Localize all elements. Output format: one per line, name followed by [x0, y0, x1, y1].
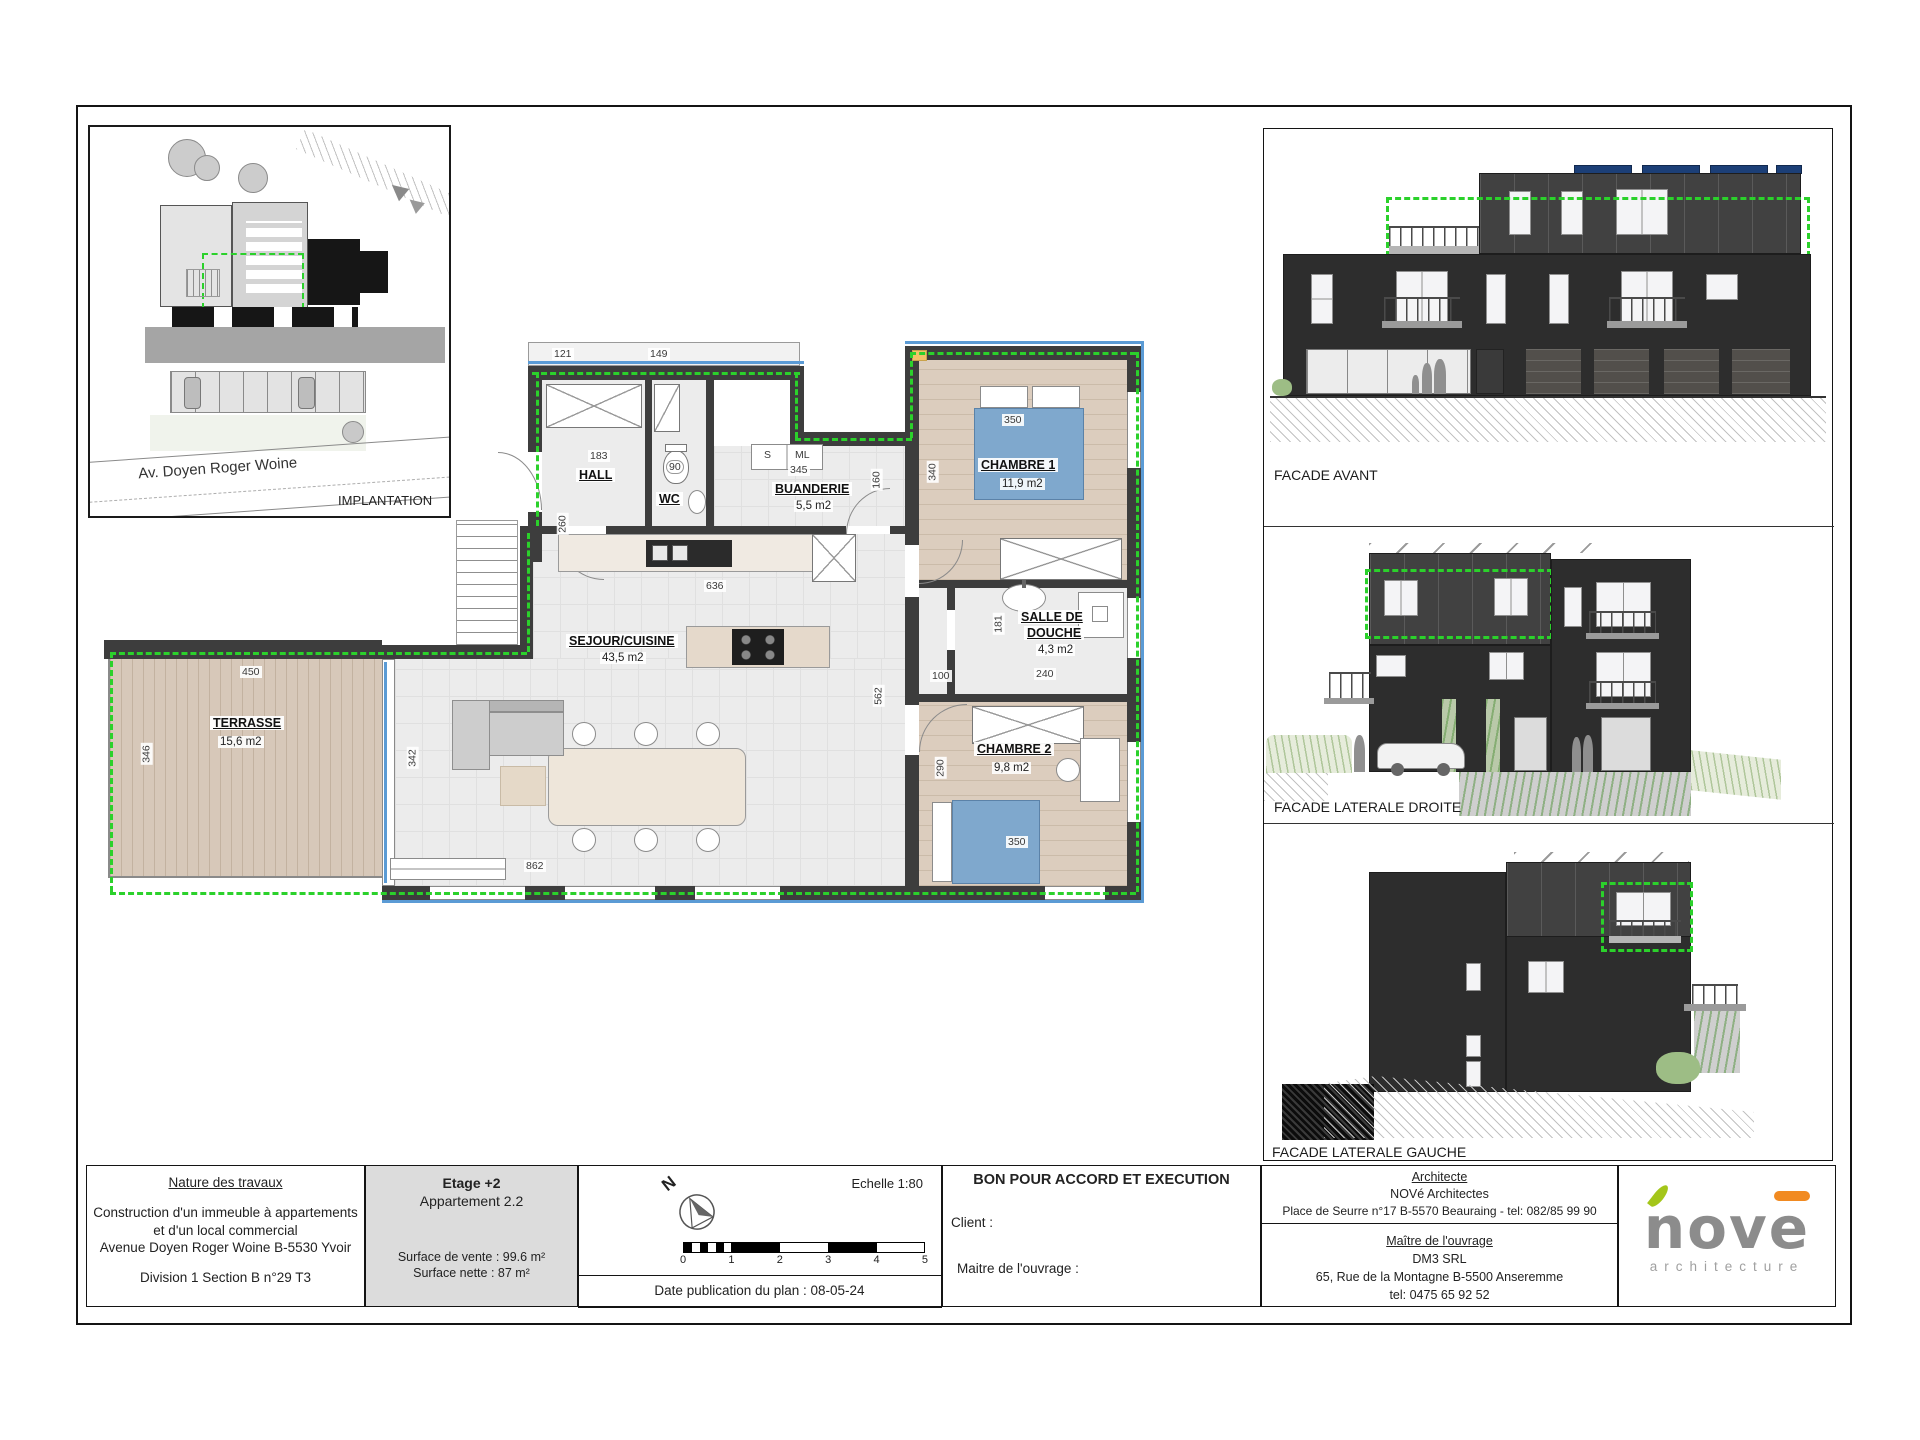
window — [1311, 274, 1333, 324]
wall — [919, 694, 1127, 702]
dim-label: 350 — [1006, 836, 1028, 848]
room-label-terrasse: TERRASSE — [210, 716, 284, 730]
rug — [500, 766, 546, 806]
approval-maitre: Maitre de l'ouvrage : — [957, 1260, 1252, 1278]
sink-basin — [652, 545, 668, 561]
rear-balcony-slab — [1684, 1004, 1746, 1011]
apartment-outline — [532, 372, 800, 375]
washbasin-icon — [1002, 584, 1046, 612]
car-wheel — [1391, 763, 1404, 776]
retaining-wall-vines — [1459, 772, 1691, 816]
implantation-caption: IMPLANTATION — [338, 493, 432, 508]
dining-table — [548, 748, 746, 826]
site-boundary-hatch — [296, 129, 451, 245]
window — [1466, 1035, 1481, 1057]
room-area-terrasse: 15,6 m2 — [218, 736, 264, 748]
window — [1549, 274, 1569, 324]
owner-name: DM3 SRL — [1262, 1250, 1617, 1268]
dim-label: 149 — [648, 348, 670, 360]
window — [1706, 274, 1738, 300]
room-area-buanderie: 5,5 m2 — [794, 500, 833, 512]
window — [1489, 652, 1524, 680]
room-area-chambre2: 9,8 m2 — [992, 762, 1031, 774]
shower-drain — [1092, 606, 1108, 622]
garage-door — [1732, 349, 1790, 394]
bush-icon — [342, 421, 364, 443]
facade-laterale-gauche: FACADE LATERALE GAUCHE — [1264, 823, 1834, 1162]
balcony-slab — [1607, 321, 1687, 328]
facade-droite-label: FACADE LATERALE DROITE — [1274, 799, 1461, 815]
room-area-sejour: 43,5 m2 — [600, 652, 646, 664]
scale-bar-segment — [732, 1242, 780, 1253]
chair-icon — [572, 722, 596, 746]
balcony-railing — [1589, 681, 1656, 703]
drawing-sheet: Av. Doyen Roger Woine IMPLANTATION — [0, 0, 1920, 1440]
scale-tick: 2 — [774, 1254, 786, 1266]
tree-icon — [194, 155, 220, 181]
car-wheel — [1437, 763, 1450, 776]
titleblock-nature: Nature des travaux Construction d'un imm… — [86, 1165, 365, 1307]
dark-roof-block — [360, 251, 388, 293]
terrace-parapet — [104, 640, 382, 659]
architect-name: NOVé Architectes — [1262, 1186, 1617, 1203]
facade-line-blue — [905, 341, 1141, 344]
surface-nette: Surface nette : 87 m² — [366, 1265, 577, 1282]
room-label-sejour: SEJOUR/CUISINE — [566, 634, 678, 648]
appliance-label: ML — [793, 449, 812, 461]
room-label-chambre2: CHAMBRE 2 — [974, 742, 1054, 756]
apartment-outline — [795, 438, 912, 441]
dim-label: 350 — [1002, 414, 1024, 426]
nature-line3: Avenue Doyen Roger Woine B-5530 Yvoir — [87, 1239, 364, 1257]
titleblock-approval: BON POUR ACCORD ET EXECUTION Client : Ma… — [942, 1165, 1261, 1307]
dim-label: 260 — [557, 513, 569, 535]
scale-tick: 3 — [822, 1254, 834, 1266]
ground-hatch — [1270, 398, 1826, 442]
person-silhouette — [1434, 359, 1446, 394]
logo: nove — [1644, 1199, 1810, 1257]
scale-text: Echelle 1:80 — [851, 1176, 923, 1191]
person-silhouette — [1572, 737, 1581, 772]
apartment-outline-facade — [1386, 197, 1810, 257]
facade-gauche-label: FACADE LATERALE GAUCHE — [1272, 1144, 1466, 1160]
slope-hatch — [1264, 773, 1328, 801]
terrasse-floor — [108, 659, 382, 878]
facade-line-blue — [382, 900, 1144, 903]
door-opening — [905, 705, 919, 755]
hedge — [1266, 735, 1352, 773]
wall — [706, 380, 714, 534]
facade-avant-label: FACADE AVANT — [1274, 467, 1378, 483]
owner-section: Maître de l'ouvrage DM3 SRL 65, Rue de l… — [1262, 1224, 1617, 1305]
titleblock-logo: nove architecture — [1618, 1165, 1836, 1307]
facade-line-blue — [1141, 341, 1144, 903]
scale-bar — [683, 1242, 925, 1252]
cooktop-icon — [732, 629, 784, 665]
bush-icon — [1272, 379, 1292, 396]
wall — [645, 380, 652, 534]
dim-label: 240 — [1034, 668, 1056, 680]
apartment-outline — [110, 652, 527, 655]
child-silhouette — [1412, 375, 1419, 394]
appliance-label: S — [762, 449, 773, 461]
side-balcony-railing — [1329, 672, 1371, 698]
surface-vente: Surface de vente : 99.6 m² — [366, 1249, 577, 1266]
chair-icon — [696, 828, 720, 852]
green-pillar — [1486, 699, 1500, 772]
nature-title: Nature des travaux — [87, 1174, 364, 1192]
roof-rafters — [1514, 852, 1689, 862]
titleblock-architect: Architecte NOVé Architectes Place de Seu… — [1261, 1165, 1618, 1307]
sink-basin — [672, 545, 688, 561]
dim-label: 862 — [524, 860, 546, 872]
wardrobe — [546, 384, 642, 428]
window — [1466, 1061, 1481, 1087]
etage-title: Etage +2 — [366, 1174, 577, 1192]
window — [1376, 655, 1406, 677]
apartment-outline — [536, 372, 539, 526]
tall-cabinet — [812, 534, 856, 582]
room-label-douche-1: SALLE DE — [1018, 610, 1086, 624]
window — [1564, 587, 1582, 627]
scale-tick: 5 — [919, 1254, 931, 1266]
window — [1466, 963, 1481, 991]
logo-text: nove — [1644, 1194, 1810, 1262]
scale-tick: 0 — [677, 1254, 689, 1266]
dim-label: 100 — [930, 670, 952, 682]
logo-accent-bar — [1774, 1191, 1810, 1201]
pillow — [980, 386, 1028, 408]
wardrobe — [1000, 538, 1122, 580]
door-opening — [947, 610, 955, 650]
north-letter: N — [658, 1172, 680, 1195]
person-silhouette — [1354, 735, 1365, 772]
window — [1486, 274, 1506, 324]
tree-icon — [238, 163, 268, 193]
balcony-railing — [1384, 297, 1460, 321]
dim-label: 562 — [873, 685, 885, 707]
chair-icon — [572, 828, 596, 852]
dim-label: 450 — [240, 666, 262, 678]
dim-label: 342 — [407, 747, 419, 769]
chair-icon — [634, 722, 658, 746]
dim-label: 346 — [141, 743, 153, 765]
grass-slope — [1691, 750, 1781, 799]
scale-bar-segment — [829, 1242, 877, 1253]
garage-row — [172, 307, 358, 327]
garage-door — [1526, 349, 1581, 394]
scale-bar-segment — [877, 1242, 925, 1253]
room-area-chambre1: 11,9 m2 — [1000, 478, 1045, 490]
person-silhouette — [1583, 735, 1593, 772]
implantation-panel: Av. Doyen Roger Woine IMPLANTATION — [88, 125, 451, 518]
dim-label: 183 — [588, 450, 610, 462]
bed2-headboard — [932, 802, 952, 882]
roof-rafters — [1369, 543, 1599, 553]
scale-bar-segment — [683, 1242, 732, 1253]
apartment-outline-facade — [1365, 569, 1553, 639]
room-label-douche-2: DOUCHE — [1024, 626, 1084, 640]
road-band — [145, 327, 445, 363]
chair-icon — [696, 722, 720, 746]
tv-sideboard — [390, 858, 506, 880]
entrance-glass-door — [1514, 717, 1547, 771]
dim-label: 290 — [935, 757, 947, 779]
nature-line1: Construction d'un immeuble à appartement… — [87, 1204, 364, 1222]
stairwell — [456, 520, 518, 646]
site-stairs — [186, 269, 220, 297]
plan-date-box: Date publication du plan : 08-05-24 — [578, 1275, 942, 1308]
titleblock-etage: Etage +2 Appartement 2.2 Surface de vent… — [365, 1165, 578, 1307]
scale-bar-segment — [780, 1242, 828, 1253]
apartment-outline — [110, 892, 1136, 895]
room-area-douche: 4,3 m2 — [1036, 644, 1075, 656]
titleblock-scale: N Echelle 1:80 0 1 2 3 4 5 Date publicat… — [578, 1165, 942, 1307]
storefront-glazing — [1306, 349, 1471, 394]
bush-icon — [1656, 1052, 1700, 1084]
apartment-outline — [910, 352, 913, 438]
toilet-tank — [665, 444, 687, 452]
architect-section: Architecte NOVé Architectes Place de Seu… — [1262, 1166, 1617, 1224]
scale-tick: 1 — [725, 1254, 737, 1266]
desk — [1080, 738, 1120, 802]
dim-label: 181 — [993, 613, 1005, 635]
person-silhouette — [1422, 363, 1432, 394]
facades-panel: FACADE AVANT — [1263, 128, 1833, 1161]
entrance-glass-door — [1601, 717, 1651, 771]
balcony-slab — [1382, 321, 1462, 328]
side-balcony-slab — [1324, 698, 1374, 704]
room-label-wc: WC — [656, 492, 683, 506]
dim-label: 90 — [666, 460, 684, 474]
approval-client: Client : — [951, 1214, 1252, 1232]
rear-balcony-railing — [1692, 984, 1738, 1004]
garage-door — [1594, 349, 1649, 394]
apartment-outline — [1136, 352, 1139, 892]
nature-line4: Division 1 Section B n°29 T3 — [87, 1269, 364, 1287]
pillow — [1032, 386, 1080, 408]
architect-title: Architecte — [1262, 1169, 1617, 1186]
facade-line-blue — [528, 361, 804, 364]
chair-icon — [634, 828, 658, 852]
apartment-outline — [795, 372, 798, 438]
facade-laterale-droite: FACADE LATERALE DROITE — [1264, 526, 1834, 823]
apartment-outline-facade — [1601, 882, 1693, 952]
left-block — [1369, 872, 1506, 1092]
washbasin-faucet — [1022, 580, 1026, 588]
dim-label: 340 — [927, 461, 939, 483]
balcony-railing — [1609, 297, 1685, 321]
desk-chair-icon — [1056, 758, 1080, 782]
balcony-slab — [1586, 633, 1659, 639]
dim-label: 636 — [704, 580, 726, 592]
architect-address: Place de Seurre n°17 B-5570 Beauraing - … — [1262, 1203, 1617, 1219]
wc-sink-icon — [688, 490, 706, 514]
approval-title: BON POUR ACCORD ET EXECUTION — [951, 1172, 1252, 1188]
apartment-outline — [527, 533, 530, 652]
wardrobe — [972, 706, 1084, 744]
room-label-buanderie: BUANDERIE — [772, 482, 852, 496]
window — [1528, 961, 1564, 993]
garage-door — [1664, 349, 1719, 394]
apartment-outline — [910, 352, 1136, 355]
street-name: Av. Doyen Roger Woine — [138, 449, 379, 483]
apartment-outline — [110, 652, 113, 892]
dim-label: 121 — [552, 348, 574, 360]
facade-line-blue — [384, 662, 387, 883]
dark-roof-block — [308, 239, 360, 305]
compass-icon — [670, 1185, 724, 1239]
scale-ticks: 0 1 2 3 4 5 — [677, 1254, 931, 1266]
balcony-slab — [1586, 703, 1659, 709]
door-opening — [905, 545, 919, 597]
car-icon — [184, 377, 201, 409]
room-label-hall: HALL — [576, 468, 615, 482]
owner-title: Maître de l'ouvrage — [1262, 1232, 1617, 1250]
scale-tick: 4 — [871, 1254, 883, 1266]
car-silhouette — [1377, 743, 1465, 769]
car-icon — [298, 377, 315, 409]
room-label-chambre1: CHAMBRE 1 — [978, 458, 1058, 472]
facade-avant: FACADE AVANT — [1264, 129, 1834, 526]
owner-tel: tel: 0475 65 92 52 — [1262, 1286, 1617, 1304]
balcony-railing — [1589, 611, 1656, 633]
dim-label: 345 — [788, 464, 810, 476]
entrance-door — [1476, 349, 1504, 394]
rear-wall-vines — [1694, 1011, 1740, 1073]
sofa-chaise — [452, 700, 490, 770]
owner-address: 65, Rue de la Montagne B-5500 Anseremme — [1262, 1268, 1617, 1286]
nature-line2: et d'un local commercial — [87, 1222, 364, 1240]
closet — [654, 384, 680, 432]
dim-label: 160 — [871, 469, 883, 491]
apartment-name: Appartement 2.2 — [366, 1192, 577, 1210]
